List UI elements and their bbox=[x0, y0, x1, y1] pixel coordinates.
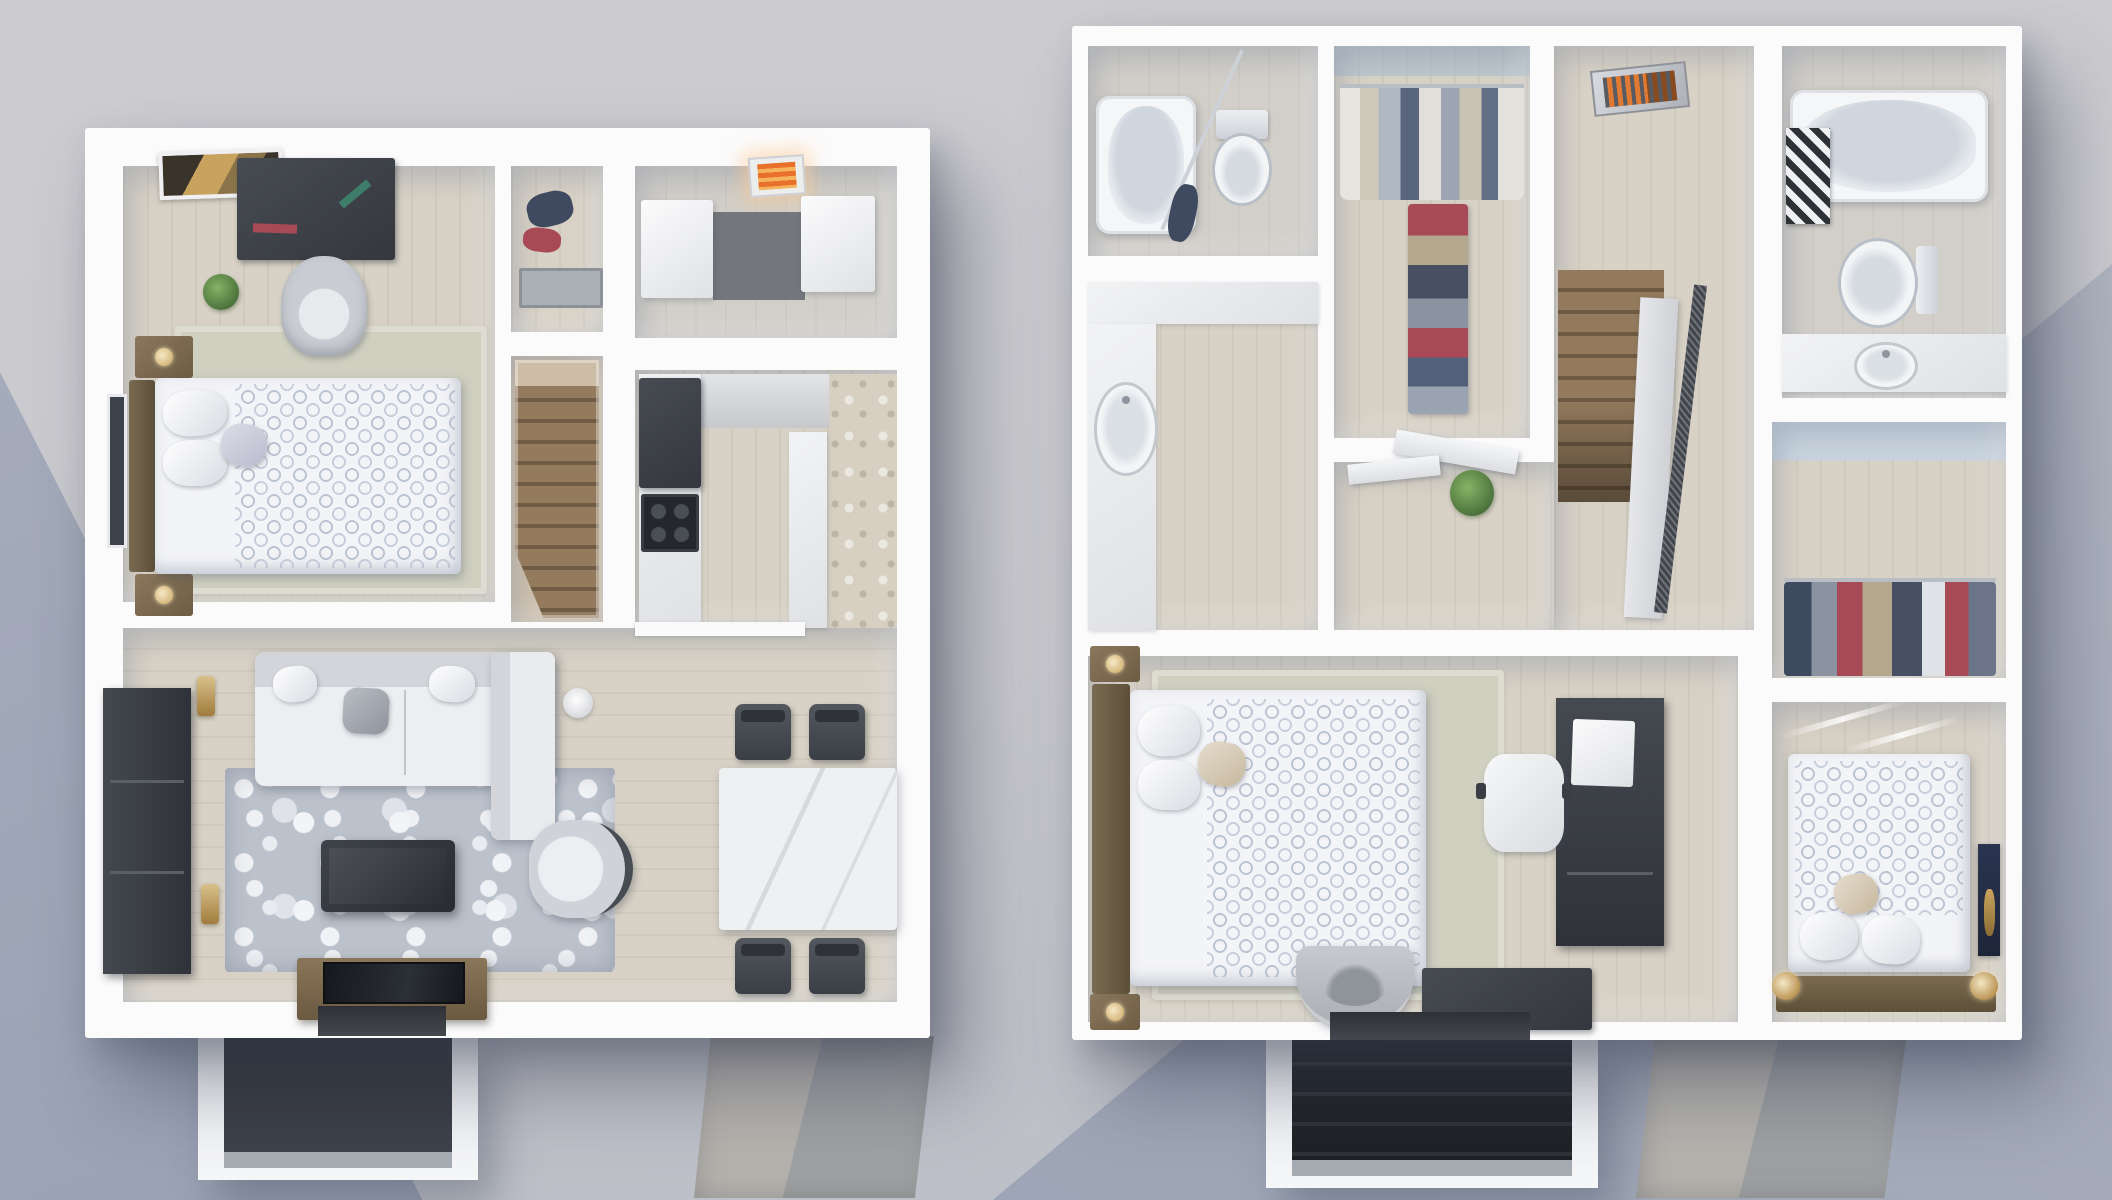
patio-first-floor bbox=[694, 1036, 934, 1198]
master-nightstand-1 bbox=[1090, 646, 1140, 682]
hanging-clothes-2 bbox=[1784, 582, 1996, 676]
dryer bbox=[801, 196, 875, 292]
desk-chair bbox=[1484, 754, 1564, 852]
toilet-2 bbox=[1838, 238, 1938, 322]
stove bbox=[641, 494, 699, 552]
master-nightstand-2 bbox=[1090, 994, 1140, 1030]
tv bbox=[323, 962, 465, 1004]
bed3-headboard bbox=[1776, 976, 1996, 1012]
fridge bbox=[639, 378, 701, 488]
washer bbox=[641, 200, 713, 298]
kitchen-stone-wall bbox=[829, 374, 897, 628]
armchair-living bbox=[529, 820, 633, 918]
bed1-pillow-2 bbox=[163, 439, 228, 486]
room-landing bbox=[1334, 462, 1554, 630]
wall-art-bedroom-3 bbox=[1978, 844, 2000, 956]
plant-hallway bbox=[1450, 470, 1494, 516]
stair-porch-second-floor bbox=[1266, 1036, 1598, 1188]
bath-mat-striped bbox=[1786, 128, 1830, 224]
hanging-clothes bbox=[1340, 88, 1524, 200]
vanity-counter-top bbox=[1088, 282, 1318, 324]
lamp-gold-2 bbox=[1970, 972, 1998, 1000]
dining-chair-1 bbox=[735, 704, 791, 760]
dining-chair-3 bbox=[735, 938, 791, 994]
lamp-gold-1 bbox=[1772, 972, 1800, 1000]
sink-1 bbox=[1094, 382, 1158, 476]
staircase-1f bbox=[515, 360, 599, 618]
floorplan-render-stage bbox=[0, 0, 2112, 1200]
sofa-chaise bbox=[491, 652, 555, 840]
vanity-counter-side bbox=[1088, 324, 1156, 630]
nightstand-top bbox=[135, 336, 193, 378]
stair-opening-second-floor bbox=[1330, 1012, 1530, 1040]
dining-table bbox=[719, 768, 897, 930]
tv-console bbox=[103, 688, 191, 974]
bed1-headboard bbox=[129, 380, 155, 572]
bedroom-window bbox=[107, 394, 127, 548]
bedm-pillow-2 bbox=[1137, 759, 1201, 811]
first-floor-plan bbox=[85, 128, 930, 1038]
laundry-heat-light bbox=[748, 154, 807, 198]
floor-lamp bbox=[563, 688, 593, 718]
closet-table bbox=[519, 268, 603, 308]
plant-bedroom bbox=[203, 274, 239, 310]
sofa-pillow-2 bbox=[428, 664, 476, 703]
entry-porch-first-floor bbox=[198, 1032, 478, 1180]
armchair-bedroom bbox=[281, 256, 367, 356]
master-headboard bbox=[1092, 684, 1130, 994]
second-floor-plan bbox=[1072, 26, 2022, 1040]
sink-2 bbox=[1854, 342, 1918, 390]
toilet-1 bbox=[1212, 110, 1272, 206]
patio-second-floor bbox=[1636, 1040, 1906, 1198]
bed3-pillow-2 bbox=[1860, 914, 1921, 966]
dining-chair-2 bbox=[809, 704, 865, 760]
wall-kitchen-living bbox=[635, 622, 805, 636]
laundry-dark-floor bbox=[713, 212, 805, 300]
dresser-accent-red bbox=[253, 223, 297, 234]
sofa-pillow-3 bbox=[342, 687, 390, 735]
coffee-table bbox=[321, 840, 455, 912]
entry-door-first-floor bbox=[318, 1006, 446, 1036]
nightstand-bottom bbox=[135, 574, 193, 616]
dresser-bedroom bbox=[237, 158, 395, 260]
laptop bbox=[1571, 719, 1635, 787]
brass-decor-2 bbox=[201, 884, 219, 924]
kitchen-island bbox=[789, 432, 827, 628]
brass-decor-1 bbox=[197, 676, 215, 716]
dining-chair-4 bbox=[809, 938, 865, 994]
folded-clothes bbox=[1408, 204, 1468, 414]
